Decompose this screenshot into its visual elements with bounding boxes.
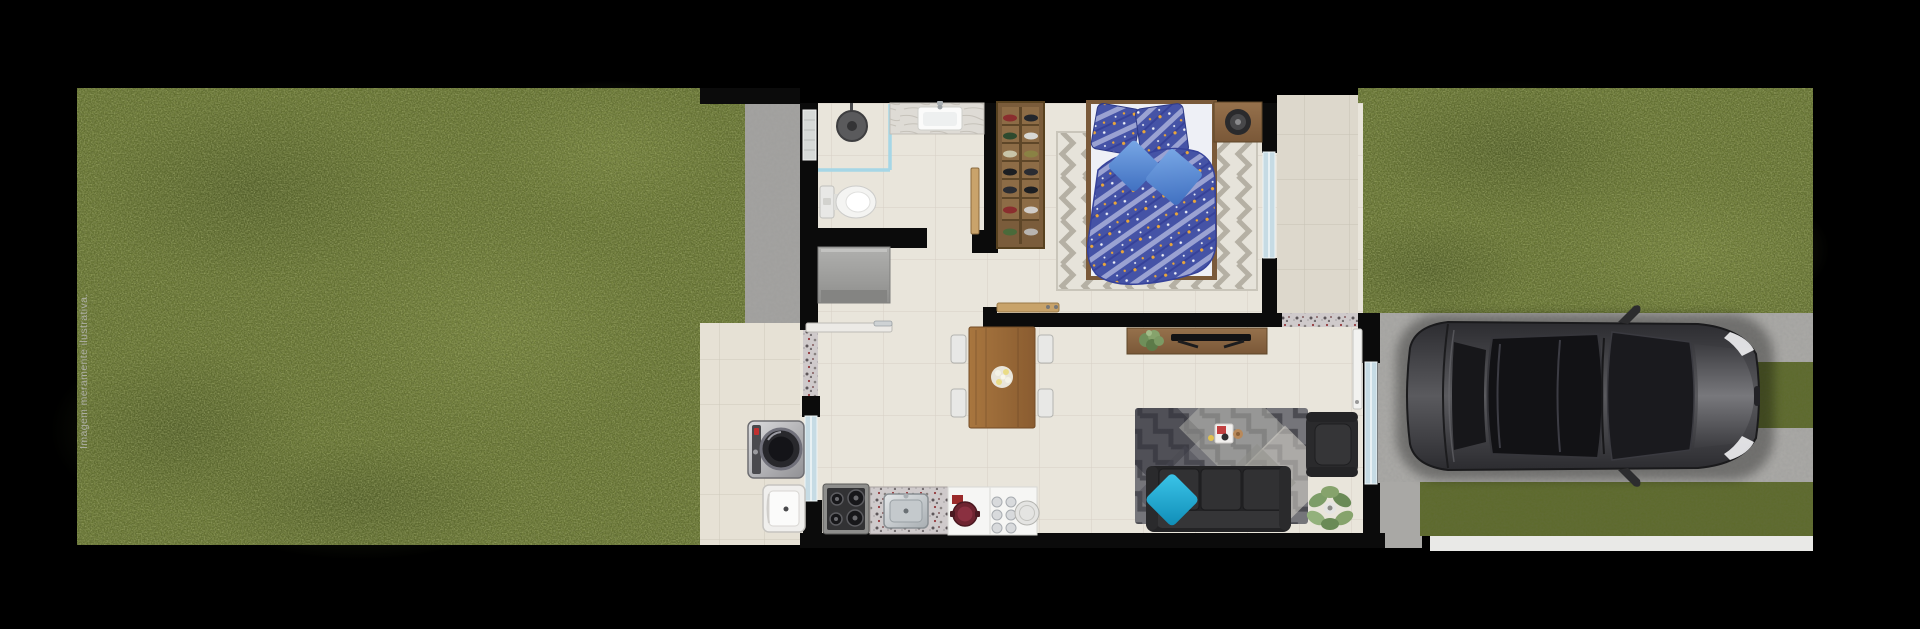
washing-machine — [748, 421, 804, 478]
car-windshield — [1608, 332, 1695, 460]
disclaimer-text: Imagem meramente ilustrativa. — [78, 293, 90, 449]
tv-console — [1127, 328, 1267, 354]
dining-chair — [951, 335, 966, 363]
wall-bedroom-east-lower — [1262, 258, 1277, 313]
right-lawn — [1330, 80, 1830, 325]
bed — [1086, 100, 1217, 284]
wall-south — [800, 533, 1385, 548]
street-lawn-strip — [1420, 482, 1813, 536]
front-door — [1353, 329, 1362, 409]
nightstand — [1214, 102, 1262, 142]
wall-bathroom-east — [984, 103, 998, 238]
dining-chair — [951, 389, 966, 417]
granite-counter — [870, 487, 948, 534]
car-rear-window — [1452, 342, 1486, 450]
bedroom-window — [1263, 152, 1275, 258]
sidewalk-strip — [1430, 536, 1813, 551]
wall-stub-kitchen-1 — [802, 396, 820, 417]
wall-bedroom-south — [983, 313, 1282, 327]
dining-chair — [1038, 335, 1053, 363]
sofa — [1144, 466, 1291, 532]
car-roof-glass — [1488, 334, 1603, 458]
kitchen-window — [805, 416, 817, 501]
round-speaker — [1225, 109, 1251, 135]
floor-plan-canvas — [0, 0, 1920, 629]
dining-chair — [1038, 389, 1053, 417]
kitchen-sink — [884, 494, 928, 529]
armchair — [1306, 412, 1358, 477]
car — [1396, 305, 1774, 487]
cooktop — [823, 484, 869, 534]
wall-bathroom-south — [800, 228, 927, 248]
bathroom-door — [971, 168, 979, 234]
vanity-counter — [890, 101, 984, 134]
gray-dresser — [818, 247, 890, 303]
wall-top-bump — [700, 88, 800, 104]
bathroom-window — [803, 110, 816, 160]
wall-stub-kitchen-2 — [803, 500, 822, 538]
service-threshold — [803, 330, 818, 396]
left-lawn — [50, 80, 745, 560]
living-window — [1365, 362, 1377, 484]
flower-centerpiece — [991, 366, 1013, 388]
laundry-tub — [763, 485, 805, 532]
white-counter — [948, 487, 1039, 535]
toilet — [820, 186, 876, 218]
service-door — [806, 321, 892, 332]
wall-shelf — [997, 303, 1059, 312]
front-door-threshold — [1282, 313, 1358, 327]
floor-plan-render: Imagem meramente ilustrativa. — [0, 0, 1920, 629]
wall-bedroom-east-upper — [1262, 103, 1277, 153]
shoe-closet — [997, 102, 1044, 248]
side-walkway — [745, 103, 800, 323]
